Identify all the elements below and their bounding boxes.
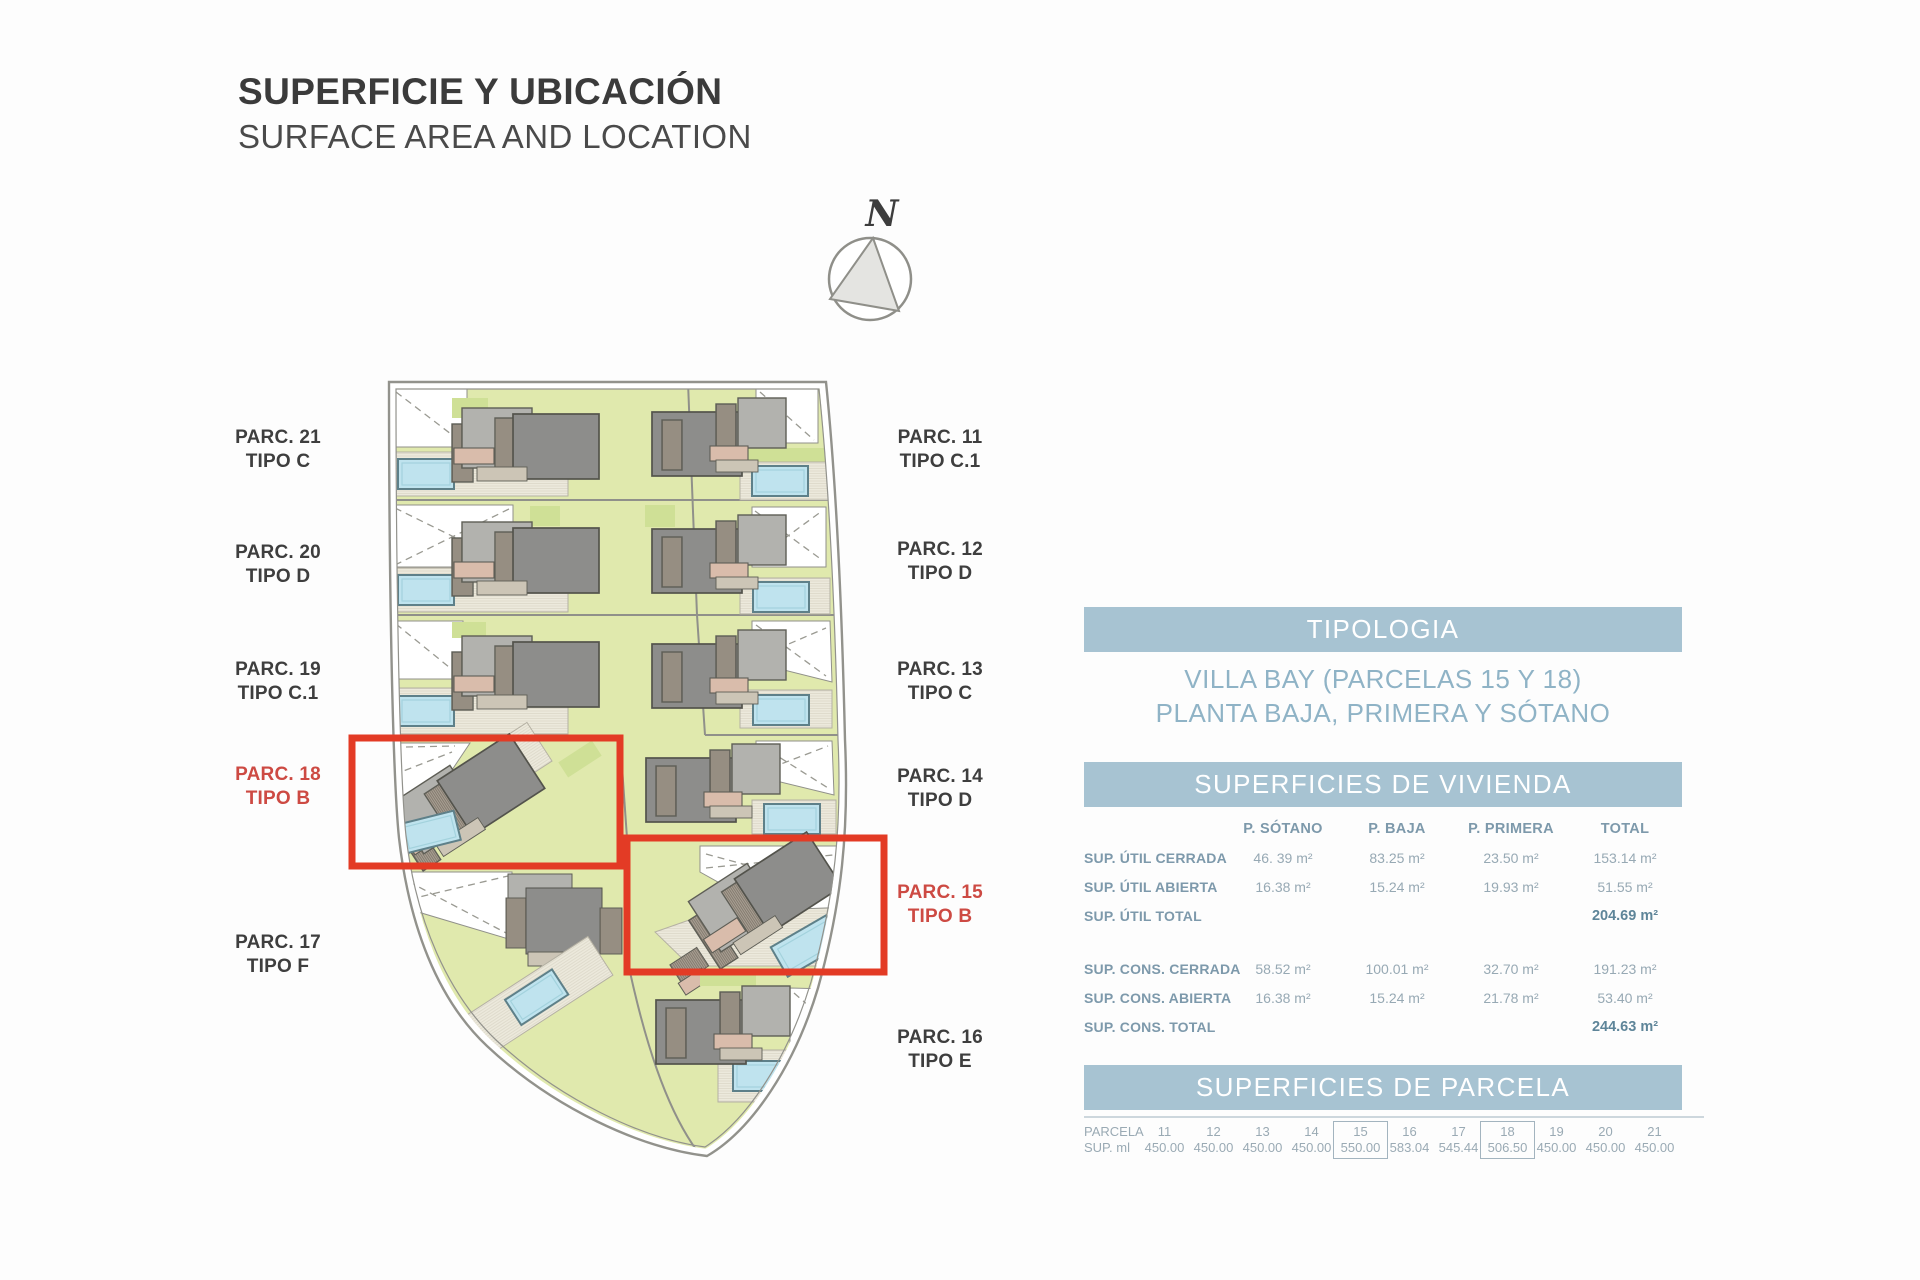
parcel-label-20: PARC. 20TIPO D (235, 541, 321, 589)
parcel-label-12: PARC. 12TIPO D (897, 538, 983, 586)
parcela-col-14: 14 450.00 (1287, 1124, 1336, 1156)
parcela-table-rule (1084, 1116, 1704, 1118)
compass-north-letter: N (865, 193, 901, 235)
table-row: SUP. CONS. ABIERTA 16.38 m² 15.24 m² 21.… (1084, 983, 1682, 1012)
parcels-area (348, 382, 880, 1156)
parcela-header-bar: SUPERFICIES DE PARCELA (1084, 1065, 1682, 1110)
parcela-col-15: 15 550.00 (1336, 1124, 1385, 1156)
table-row: SUP. CONS. CERRADA 58.52 m² 100.01 m² 32… (1084, 954, 1682, 983)
vivienda-header-row: P. SÓTANO P. BAJA P. PRIMERA TOTAL (1084, 814, 1682, 843)
table-row-total: SUP. CONS. TOTAL 244.63 m² (1084, 1012, 1682, 1041)
parcela-col-13: 13 450.00 (1238, 1124, 1287, 1156)
parcela-table: PARCELA SUP. ml 11 450.00 12 450.00 13 4… (1084, 1124, 1679, 1156)
parcel-label-15: PARC. 15TIPO B (897, 881, 983, 929)
col-primera: P. PRIMERA (1454, 821, 1568, 837)
vivienda-table: P. SÓTANO P. BAJA P. PRIMERA TOTAL SUP. … (1084, 814, 1682, 1041)
col-baja: P. BAJA (1340, 821, 1454, 837)
parcel-label-11: PARC. 11TIPO C.1 (898, 426, 983, 474)
parcela-col-18: 18 506.50 (1483, 1124, 1532, 1156)
parcela-col-16: 16 583.04 (1385, 1124, 1434, 1156)
page-title: SUPERFICIE Y UBICACIÓN SURFACE AREA AND … (238, 70, 752, 157)
parcel-label-13: PARC. 13TIPO C (897, 658, 983, 706)
brochure-page: SUPERFICIE Y UBICACIÓN SURFACE AREA AND … (0, 0, 1920, 1280)
parcela-col-19: 19 450.00 (1532, 1124, 1581, 1156)
parcel-15 (644, 827, 880, 995)
parcel-label-14: PARC. 14TIPO D (897, 765, 983, 813)
parcela-col-12: 12 450.00 (1189, 1124, 1238, 1156)
parcel-15-highlight (627, 838, 884, 972)
tipologia-header-bar: TIPOLOGIA (1084, 607, 1682, 652)
tipologia-subtitle: VILLA BAY (PARCELAS 15 Y 18) PLANTA BAJA… (1084, 663, 1682, 731)
table-row-total: SUP. ÚTIL TOTAL 204.69 m² (1084, 901, 1682, 930)
col-sotano: P. SÓTANO (1226, 821, 1340, 837)
parcel-13 (652, 621, 832, 728)
title-spanish: SUPERFICIE Y UBICACIÓN (238, 70, 752, 114)
parcel-dividers (392, 382, 845, 1148)
parcela-col-17: 17 545.44 (1434, 1124, 1483, 1156)
parcel-18-highlight (352, 738, 620, 866)
site-boundary-outer (389, 382, 846, 1156)
parcel-label-18: PARC. 18TIPO B (235, 763, 321, 811)
parcel-17 (394, 872, 622, 1054)
parcela-col-11: 11 450.00 (1140, 1124, 1189, 1156)
site-boundary-inner (396, 389, 839, 1147)
parcel-12 (645, 505, 830, 614)
table-row: SUP. ÚTIL ABIERTA 16.38 m² 15.24 m² 19.9… (1084, 872, 1682, 901)
parcel-label-19: PARC. 19TIPO C.1 (235, 658, 321, 706)
parcel-16 (656, 974, 868, 1102)
parcel-21 (392, 389, 599, 496)
tipologia-line2: PLANTA BAJA, PRIMERA Y SÓTANO (1084, 697, 1682, 731)
parcela-col-20: 20 450.00 (1581, 1124, 1630, 1156)
table-row: SUP. ÚTIL CERRADA 46. 39 m² 83.25 m² 23.… (1084, 843, 1682, 872)
parcel-14 (646, 741, 836, 834)
parcel-20 (392, 505, 599, 612)
north-compass-icon: N (829, 193, 911, 320)
col-total: TOTAL (1568, 821, 1682, 837)
vivienda-header-bar: SUPERFICIES DE VIVIENDA (1084, 762, 1682, 807)
parcel-label-16: PARC. 16TIPO E (897, 1026, 983, 1074)
parcela-row-labels: PARCELA SUP. ml (1084, 1124, 1140, 1156)
parcel-label-21: PARC. 21TIPO C (235, 426, 321, 474)
parcel-19 (392, 621, 599, 734)
parcel-18 (348, 717, 602, 893)
parcela-col-21: 21 450.00 (1630, 1124, 1679, 1156)
parcel-label-17: PARC. 17TIPO F (235, 931, 321, 979)
title-english: SURFACE AREA AND LOCATION (238, 118, 752, 157)
parcel-11 (652, 389, 828, 500)
tipologia-line1: VILLA BAY (PARCELAS 15 Y 18) (1084, 663, 1682, 697)
